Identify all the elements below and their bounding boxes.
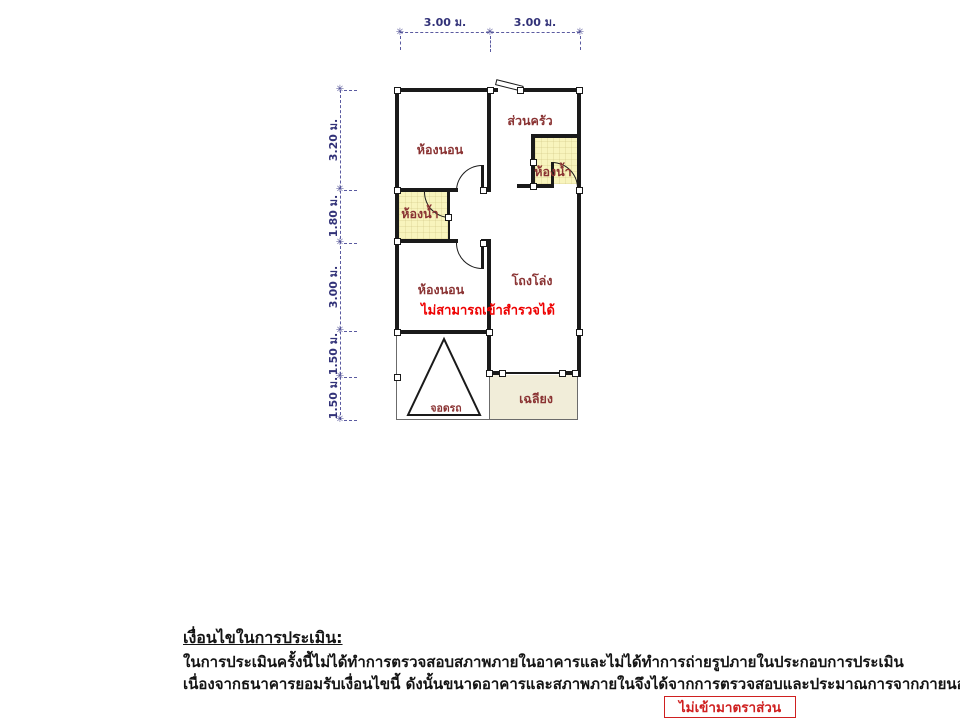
- extension-line: [580, 36, 581, 50]
- room-label-bedroom-top: ห้องนอน: [417, 140, 463, 160]
- room-label-bathroom-left: ห้องน้ำ: [401, 204, 438, 224]
- room-label-bedroom-lower: ห้องนอน: [418, 280, 464, 300]
- extension-line: [344, 90, 357, 91]
- dimension-tick-icon: ✳: [336, 372, 344, 382]
- floor-plan-page: ✳ ✳ ✳ 3.00 ม. 3.00 ม. ✳ ✳ ✳ ✳ ✳ ✳ 3.20 ม…: [0, 0, 960, 720]
- column-post: [445, 214, 452, 221]
- dimension-tick-icon: ✳: [336, 185, 344, 195]
- dim-label-top-right: 3.00 ม.: [514, 13, 556, 31]
- column-post: [394, 187, 401, 194]
- column-post: [486, 370, 493, 377]
- wall-segment: [487, 88, 491, 192]
- column-post: [559, 370, 566, 377]
- not-to-scale-stamp: ไม่เข้ามาตราส่วน: [664, 696, 796, 718]
- column-post: [576, 187, 583, 194]
- column-post: [530, 183, 537, 190]
- extension-line: [344, 331, 357, 332]
- dimension-tick-icon: ✳: [396, 28, 404, 38]
- door-leaf: [481, 243, 484, 269]
- extension-line: [490, 36, 491, 52]
- column-post: [576, 329, 583, 336]
- room-label-porch: เฉลียง: [519, 389, 553, 409]
- notes-heading: เงื่อนไขในการประเมิน:: [183, 626, 343, 651]
- column-post: [486, 329, 493, 336]
- dimension-tick-icon: ✳: [336, 238, 344, 248]
- extension-line: [344, 420, 357, 421]
- column-post: [572, 370, 579, 377]
- column-post: [394, 374, 401, 381]
- dimension-tick-icon: ✳: [486, 28, 494, 38]
- door-leaf: [447, 192, 450, 216]
- dim-label-top-left: 3.00 ม.: [424, 13, 466, 31]
- column-post: [517, 87, 524, 94]
- notes-line-2: เนื่องจากธนาคารยอมรับเงื่อนไขนี้ ดังนั้น…: [183, 672, 960, 696]
- extension-line: [344, 190, 357, 191]
- wall-segment: [395, 239, 458, 243]
- column-post: [394, 329, 401, 336]
- door-arc: [456, 165, 482, 191]
- notes-line-1: ในการประเมินครั้งนี้ไม่ได้ทำการตรวจสอบสภ…: [183, 650, 904, 674]
- room-label-bathroom-right: ห้องน้ำ: [534, 162, 571, 182]
- room-label-carport: จอดรถ: [430, 400, 461, 417]
- dimension-tick-icon: ✳: [336, 415, 344, 425]
- extension-line: [344, 243, 357, 244]
- survey-warning-note: ไม่สามารถเข้าสำรวจได้: [421, 300, 555, 321]
- extension-line: [400, 36, 401, 50]
- dimension-tick-icon: ✳: [576, 28, 584, 38]
- door-arc: [456, 243, 482, 269]
- dimension-tick-icon: ✳: [336, 326, 344, 336]
- window-line: [503, 372, 561, 374]
- wall-segment: [519, 88, 581, 92]
- dimension-tick-icon: ✳: [336, 85, 344, 95]
- column-post: [499, 370, 506, 377]
- thin-boundary: [577, 377, 578, 420]
- column-post: [480, 187, 487, 194]
- column-post: [487, 87, 494, 94]
- column-post: [394, 238, 401, 245]
- column-post: [394, 87, 401, 94]
- room-label-hall: โถงโล่ง: [512, 271, 553, 291]
- column-post: [480, 240, 487, 247]
- room-label-kitchen: ส่วนครัว: [507, 111, 552, 131]
- wall-segment: [395, 88, 498, 92]
- extension-line: [344, 377, 357, 378]
- column-post: [576, 87, 583, 94]
